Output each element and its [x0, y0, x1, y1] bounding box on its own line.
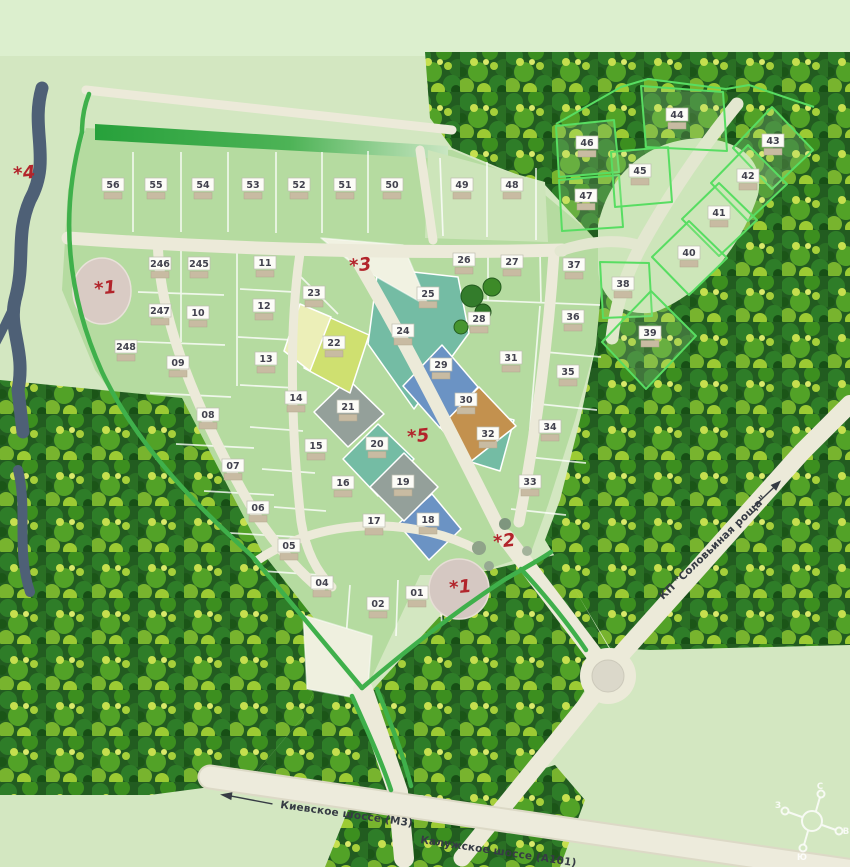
- plot-area-strip: [383, 193, 401, 200]
- plot-number: 24: [396, 326, 410, 337]
- plot-21[interactable]: 21: [337, 400, 359, 421]
- plot-area-strip: [190, 272, 208, 279]
- plot-area-strip: [565, 273, 583, 280]
- plot-41[interactable]: 41: [708, 206, 730, 227]
- plot-number: 246: [150, 259, 170, 270]
- plot-area-strip: [151, 319, 169, 326]
- plot-18[interactable]: 18: [417, 513, 439, 534]
- plot-22[interactable]: 22: [323, 336, 345, 357]
- plot-17[interactable]: 17: [363, 514, 385, 535]
- plot-number: 26: [457, 255, 471, 266]
- plot-40[interactable]: 40: [678, 246, 700, 267]
- plot-area-strip: [117, 355, 135, 362]
- plot-20[interactable]: 20: [366, 437, 388, 458]
- plot-number: 41: [712, 208, 725, 219]
- plot-number: 35: [561, 367, 574, 378]
- plot-area-strip: [541, 435, 559, 442]
- plot-35[interactable]: 35: [557, 365, 579, 386]
- plot-number: 30: [459, 395, 473, 406]
- plot-53[interactable]: 53: [242, 178, 264, 199]
- plot-number: 06: [251, 503, 265, 514]
- plot-number: 07: [226, 461, 239, 472]
- plot-area-strip: [521, 490, 539, 497]
- plot-area-strip: [453, 193, 471, 200]
- plot-number: 15: [309, 441, 322, 452]
- plot-54[interactable]: 54: [192, 178, 214, 199]
- plot-32[interactable]: 32: [477, 427, 499, 448]
- plot-15[interactable]: 15: [305, 439, 327, 460]
- plot-08[interactable]: 08: [197, 408, 219, 429]
- marker-3-2: *3: [348, 254, 372, 277]
- compass-south: Ю: [797, 853, 807, 863]
- plot-number: 02: [371, 599, 384, 610]
- plot-38[interactable]: 38: [612, 277, 634, 298]
- plot-37[interactable]: 37: [563, 258, 585, 279]
- plot-area-strip: [287, 406, 305, 413]
- plot-area-strip: [457, 408, 475, 415]
- plot-248[interactable]: 248: [115, 340, 137, 361]
- plot-area-strip: [151, 272, 169, 279]
- plot-area-strip: [764, 149, 782, 156]
- compass-west: З: [775, 801, 781, 811]
- plot-area-strip: [199, 423, 217, 430]
- plot-area-strip: [680, 261, 698, 268]
- plot-area-strip: [419, 528, 437, 535]
- plot-area-strip: [307, 454, 325, 461]
- plot-area-strip: [668, 123, 686, 130]
- plot-area-strip: [336, 193, 354, 200]
- plot-25[interactable]: 25: [417, 287, 439, 308]
- plot-52[interactable]: 52: [288, 178, 310, 199]
- plot-number: 25: [421, 289, 434, 300]
- plot-24[interactable]: 24: [392, 324, 414, 345]
- marker-5-3: *5: [406, 425, 430, 448]
- plot-number: 14: [289, 393, 303, 404]
- plot-number: 16: [336, 478, 350, 489]
- plot-area-strip: [290, 193, 308, 200]
- plot-27[interactable]: 27: [501, 255, 523, 276]
- plot-area-strip: [257, 367, 275, 374]
- plot-06[interactable]: 06: [247, 501, 269, 522]
- plot-48[interactable]: 48: [501, 178, 523, 199]
- plot-04[interactable]: 04: [311, 576, 333, 597]
- plot-number: 18: [421, 515, 435, 526]
- masterplan-map: Киевское шоссе (М3) Калужское шоссе (А10…: [0, 0, 850, 867]
- plot-number: 17: [367, 516, 380, 527]
- plot-area-strip: [394, 490, 412, 497]
- plot-11[interactable]: 11: [254, 256, 276, 277]
- plot-34[interactable]: 34: [539, 420, 561, 441]
- plot-49[interactable]: 49: [451, 178, 473, 199]
- top-light-band: [0, 0, 850, 56]
- plot-number: 44: [670, 110, 684, 121]
- plot-31[interactable]: 31: [500, 351, 522, 372]
- plot-area-strip: [631, 179, 649, 186]
- plot-area-strip: [369, 612, 387, 619]
- plot-area-strip: [147, 193, 165, 200]
- plot-47[interactable]: 47: [575, 189, 597, 210]
- plot-number: 10: [191, 308, 205, 319]
- plot-area-strip: [325, 351, 343, 358]
- compass-north: С: [817, 782, 823, 792]
- plot-number: 20: [370, 439, 384, 450]
- plot-number: 38: [616, 279, 630, 290]
- plot-39[interactable]: 39: [639, 326, 661, 347]
- plot-29[interactable]: 29: [430, 358, 452, 379]
- plot-area-strip: [503, 193, 521, 200]
- plot-12[interactable]: 12: [253, 299, 275, 320]
- compass-east: В: [843, 827, 849, 837]
- plot-area-strip: [577, 204, 595, 211]
- plot-area-strip: [313, 591, 331, 598]
- plot-number: 22: [327, 338, 340, 349]
- plot-number: 245: [189, 259, 209, 270]
- plot-42[interactable]: 42: [737, 169, 759, 190]
- marker-1-1: *1: [93, 277, 117, 300]
- plot-09[interactable]: 09: [167, 356, 189, 377]
- plot-area-strip: [394, 339, 412, 346]
- plot-10[interactable]: 10: [187, 306, 209, 327]
- plot-area-strip: [455, 268, 473, 275]
- plot-number: 09: [171, 358, 184, 369]
- plot-area-strip: [244, 193, 262, 200]
- plot-area-strip: [559, 380, 577, 387]
- plot-number: 52: [292, 180, 305, 191]
- plot-number: 08: [201, 410, 215, 421]
- plot-02[interactable]: 02: [367, 597, 389, 618]
- plot-number: 42: [741, 171, 754, 182]
- plot-number: 34: [543, 422, 557, 433]
- map-canvas: Киевское шоссе (М3) Калужское шоссе (А10…: [0, 0, 850, 867]
- plot-16[interactable]: 16: [332, 476, 354, 497]
- plot-number: 28: [472, 314, 486, 325]
- plot-number: 01: [410, 588, 423, 599]
- plot-area-strip: [365, 529, 383, 536]
- plot-number: 56: [106, 180, 120, 191]
- marker-1-5: *1: [448, 576, 472, 599]
- plot-number: 48: [505, 180, 519, 191]
- plot-number: 23: [307, 288, 320, 299]
- plot-area-strip: [470, 327, 488, 334]
- plot-area-strip: [249, 516, 267, 523]
- plot-number: 45: [633, 166, 646, 177]
- plot-30[interactable]: 30: [455, 393, 477, 414]
- plot-33[interactable]: 33: [519, 475, 541, 496]
- plot-number: 05: [282, 541, 295, 552]
- plot-area-strip: [256, 271, 274, 278]
- plot-07[interactable]: 07: [222, 459, 244, 480]
- plot-number: 33: [523, 477, 536, 488]
- plot-area-strip: [255, 314, 273, 321]
- plot-number: 247: [150, 306, 170, 317]
- plot-area-strip: [614, 292, 632, 299]
- plot-area-strip: [502, 366, 520, 373]
- plot-number: 19: [396, 477, 409, 488]
- plot-area-strip: [194, 193, 212, 200]
- plot-247[interactable]: 247: [149, 304, 171, 325]
- plot-area-strip: [479, 442, 497, 449]
- plot-number: 51: [338, 180, 351, 191]
- marker-2-4: *2: [492, 530, 516, 553]
- plot-number: 12: [257, 301, 270, 312]
- plot-area-strip: [339, 415, 357, 422]
- plot-14[interactable]: 14: [285, 391, 307, 412]
- plot-number: 50: [385, 180, 399, 191]
- plot-number: 53: [246, 180, 259, 191]
- plot-area-strip: [189, 321, 207, 328]
- plot-19[interactable]: 19: [392, 475, 414, 496]
- roundabout: [580, 648, 636, 704]
- plot-number: 36: [566, 312, 580, 323]
- plot-23[interactable]: 23: [303, 286, 325, 307]
- plot-number: 11: [258, 258, 271, 269]
- plot-number: 29: [434, 360, 447, 371]
- plot-246[interactable]: 246: [149, 257, 171, 278]
- plot-number: 55: [149, 180, 162, 191]
- plot-number: 37: [567, 260, 580, 271]
- plot-number: 32: [481, 429, 494, 440]
- plot-area-strip: [419, 302, 437, 309]
- plot-area-strip: [408, 601, 426, 608]
- plot-area-strip: [503, 270, 521, 277]
- plot-number: 47: [579, 191, 592, 202]
- plot-number: 40: [682, 248, 696, 259]
- plot-area-strip: [104, 193, 122, 200]
- plot-area-strip: [739, 184, 757, 191]
- plot-26[interactable]: 26: [453, 253, 475, 274]
- plot-50[interactable]: 50: [381, 178, 403, 199]
- plot-55[interactable]: 55: [145, 178, 167, 199]
- plot-56[interactable]: 56: [102, 178, 124, 199]
- plot-05[interactable]: 05: [278, 539, 300, 560]
- plot-13[interactable]: 13: [255, 352, 277, 373]
- plot-area-strip: [169, 371, 187, 378]
- plot-number: 31: [504, 353, 517, 364]
- plot-number: 13: [259, 354, 272, 365]
- plot-area-strip: [710, 221, 728, 228]
- plot-area-strip: [564, 325, 582, 332]
- plot-area-strip: [305, 301, 323, 308]
- plot-43[interactable]: 43: [762, 134, 784, 155]
- plot-area-strip: [432, 373, 450, 380]
- plot-44[interactable]: 44: [666, 108, 688, 129]
- plot-number: 04: [315, 578, 329, 589]
- plot-number: 46: [580, 138, 594, 149]
- plot-28[interactable]: 28: [468, 312, 490, 333]
- plot-number: 54: [196, 180, 210, 191]
- plot-number: 39: [643, 328, 656, 339]
- plot-36[interactable]: 36: [562, 310, 584, 331]
- plot-area-strip: [578, 151, 596, 158]
- marker-4-0: *4: [12, 162, 36, 185]
- plot-46[interactable]: 46: [576, 136, 598, 157]
- plot-number: 248: [116, 342, 136, 353]
- plot-245[interactable]: 245: [188, 257, 210, 278]
- plot-area-strip: [641, 341, 659, 348]
- plot-number: 27: [505, 257, 518, 268]
- plot-45[interactable]: 45: [629, 164, 651, 185]
- plot-number: 21: [341, 402, 354, 413]
- plot-area-strip: [334, 491, 352, 498]
- plot-number: 49: [455, 180, 468, 191]
- plot-51[interactable]: 51: [334, 178, 356, 199]
- plot-number: 43: [766, 136, 779, 147]
- plot-01[interactable]: 01: [406, 586, 428, 607]
- plot-area-strip: [280, 554, 298, 561]
- plot-area-strip: [224, 474, 242, 481]
- plot-area-strip: [368, 452, 386, 459]
